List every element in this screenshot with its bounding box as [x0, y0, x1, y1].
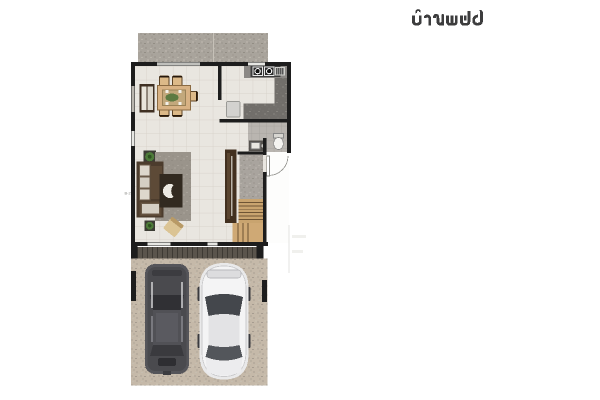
svg-text:B-2: B-2 [125, 191, 132, 196]
